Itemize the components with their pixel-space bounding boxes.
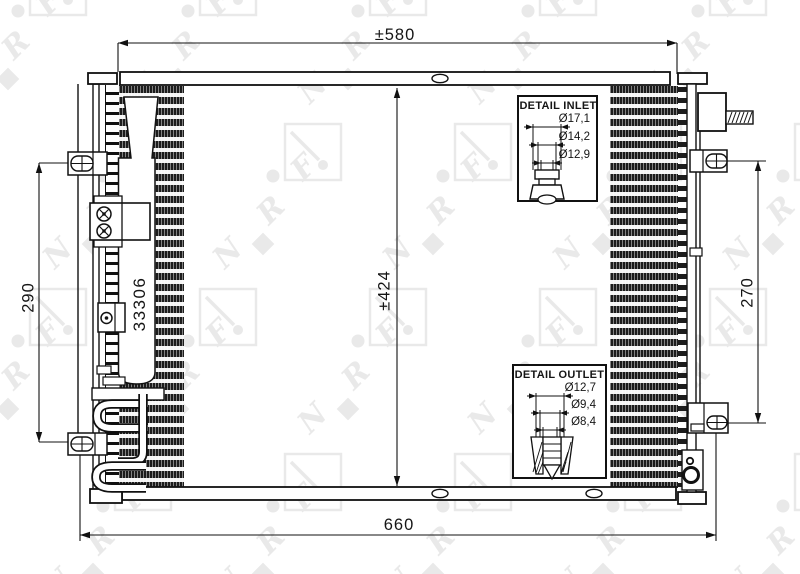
detail-outlet-title: DETAIL OUTLET <box>514 368 605 381</box>
mounting-brackets <box>68 150 728 490</box>
dimension-core-height-label: ±424 <box>377 259 394 323</box>
outlet-diameter-3: Ø8,4 <box>542 415 596 428</box>
inlet-outlet-pipes <box>92 366 164 488</box>
inlet-fitting-glyph <box>530 170 564 204</box>
dimension-left-height-label: 290 <box>21 273 38 323</box>
outlet-fitting-glyph <box>531 437 573 479</box>
part-number: 33306 <box>131 272 149 336</box>
outlet-diameter-1: Ø12,7 <box>542 381 596 394</box>
dimension-overall-width-label: 660 <box>359 517 439 534</box>
dimension-top-width-label: ±580 <box>330 26 460 44</box>
dimension-right-height-label: 270 <box>740 268 757 318</box>
inlet-diameter-2: Ø14,2 <box>536 130 590 143</box>
inlet-diameter-1: Ø17,1 <box>536 112 590 125</box>
technical-drawing-canvas: N R F N R F N R F <box>0 0 800 574</box>
condenser-line-drawing <box>0 0 800 574</box>
frame-structure <box>78 72 753 504</box>
outlet-diameter-2: Ø9,4 <box>542 398 596 411</box>
detail-inlet-title: DETAIL INLET <box>520 99 596 112</box>
inlet-diameter-3: Ø12,9 <box>536 148 590 161</box>
